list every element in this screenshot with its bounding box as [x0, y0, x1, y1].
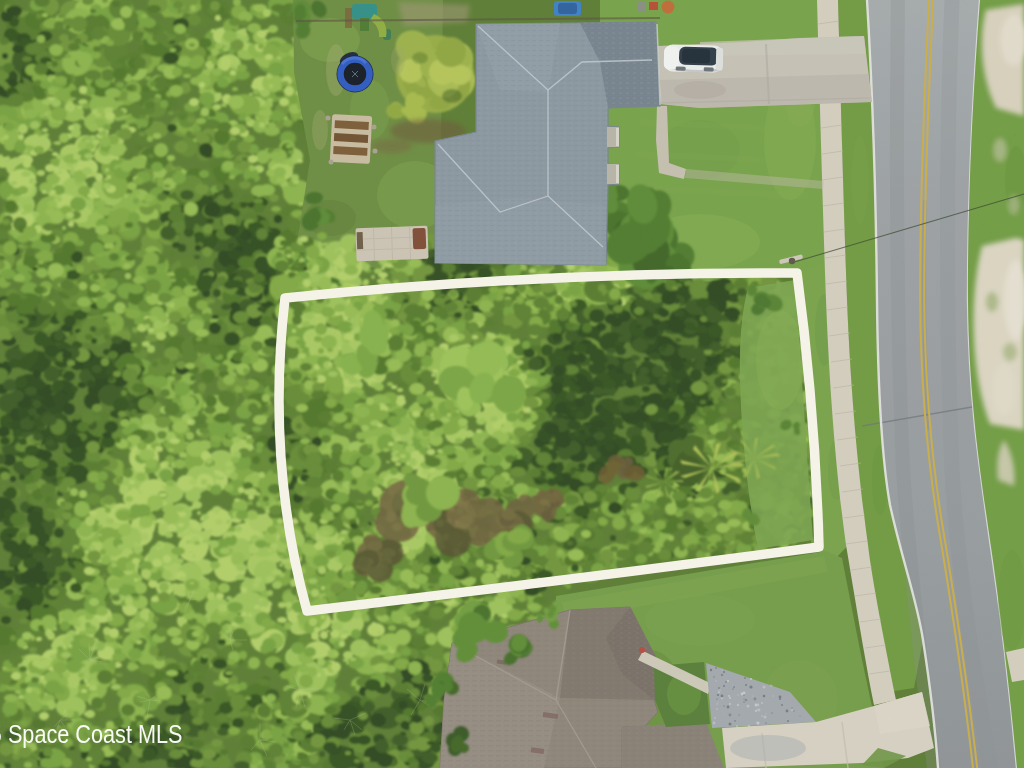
svg-text:5 Space Coast MLS: 5 Space Coast MLS [0, 720, 182, 748]
